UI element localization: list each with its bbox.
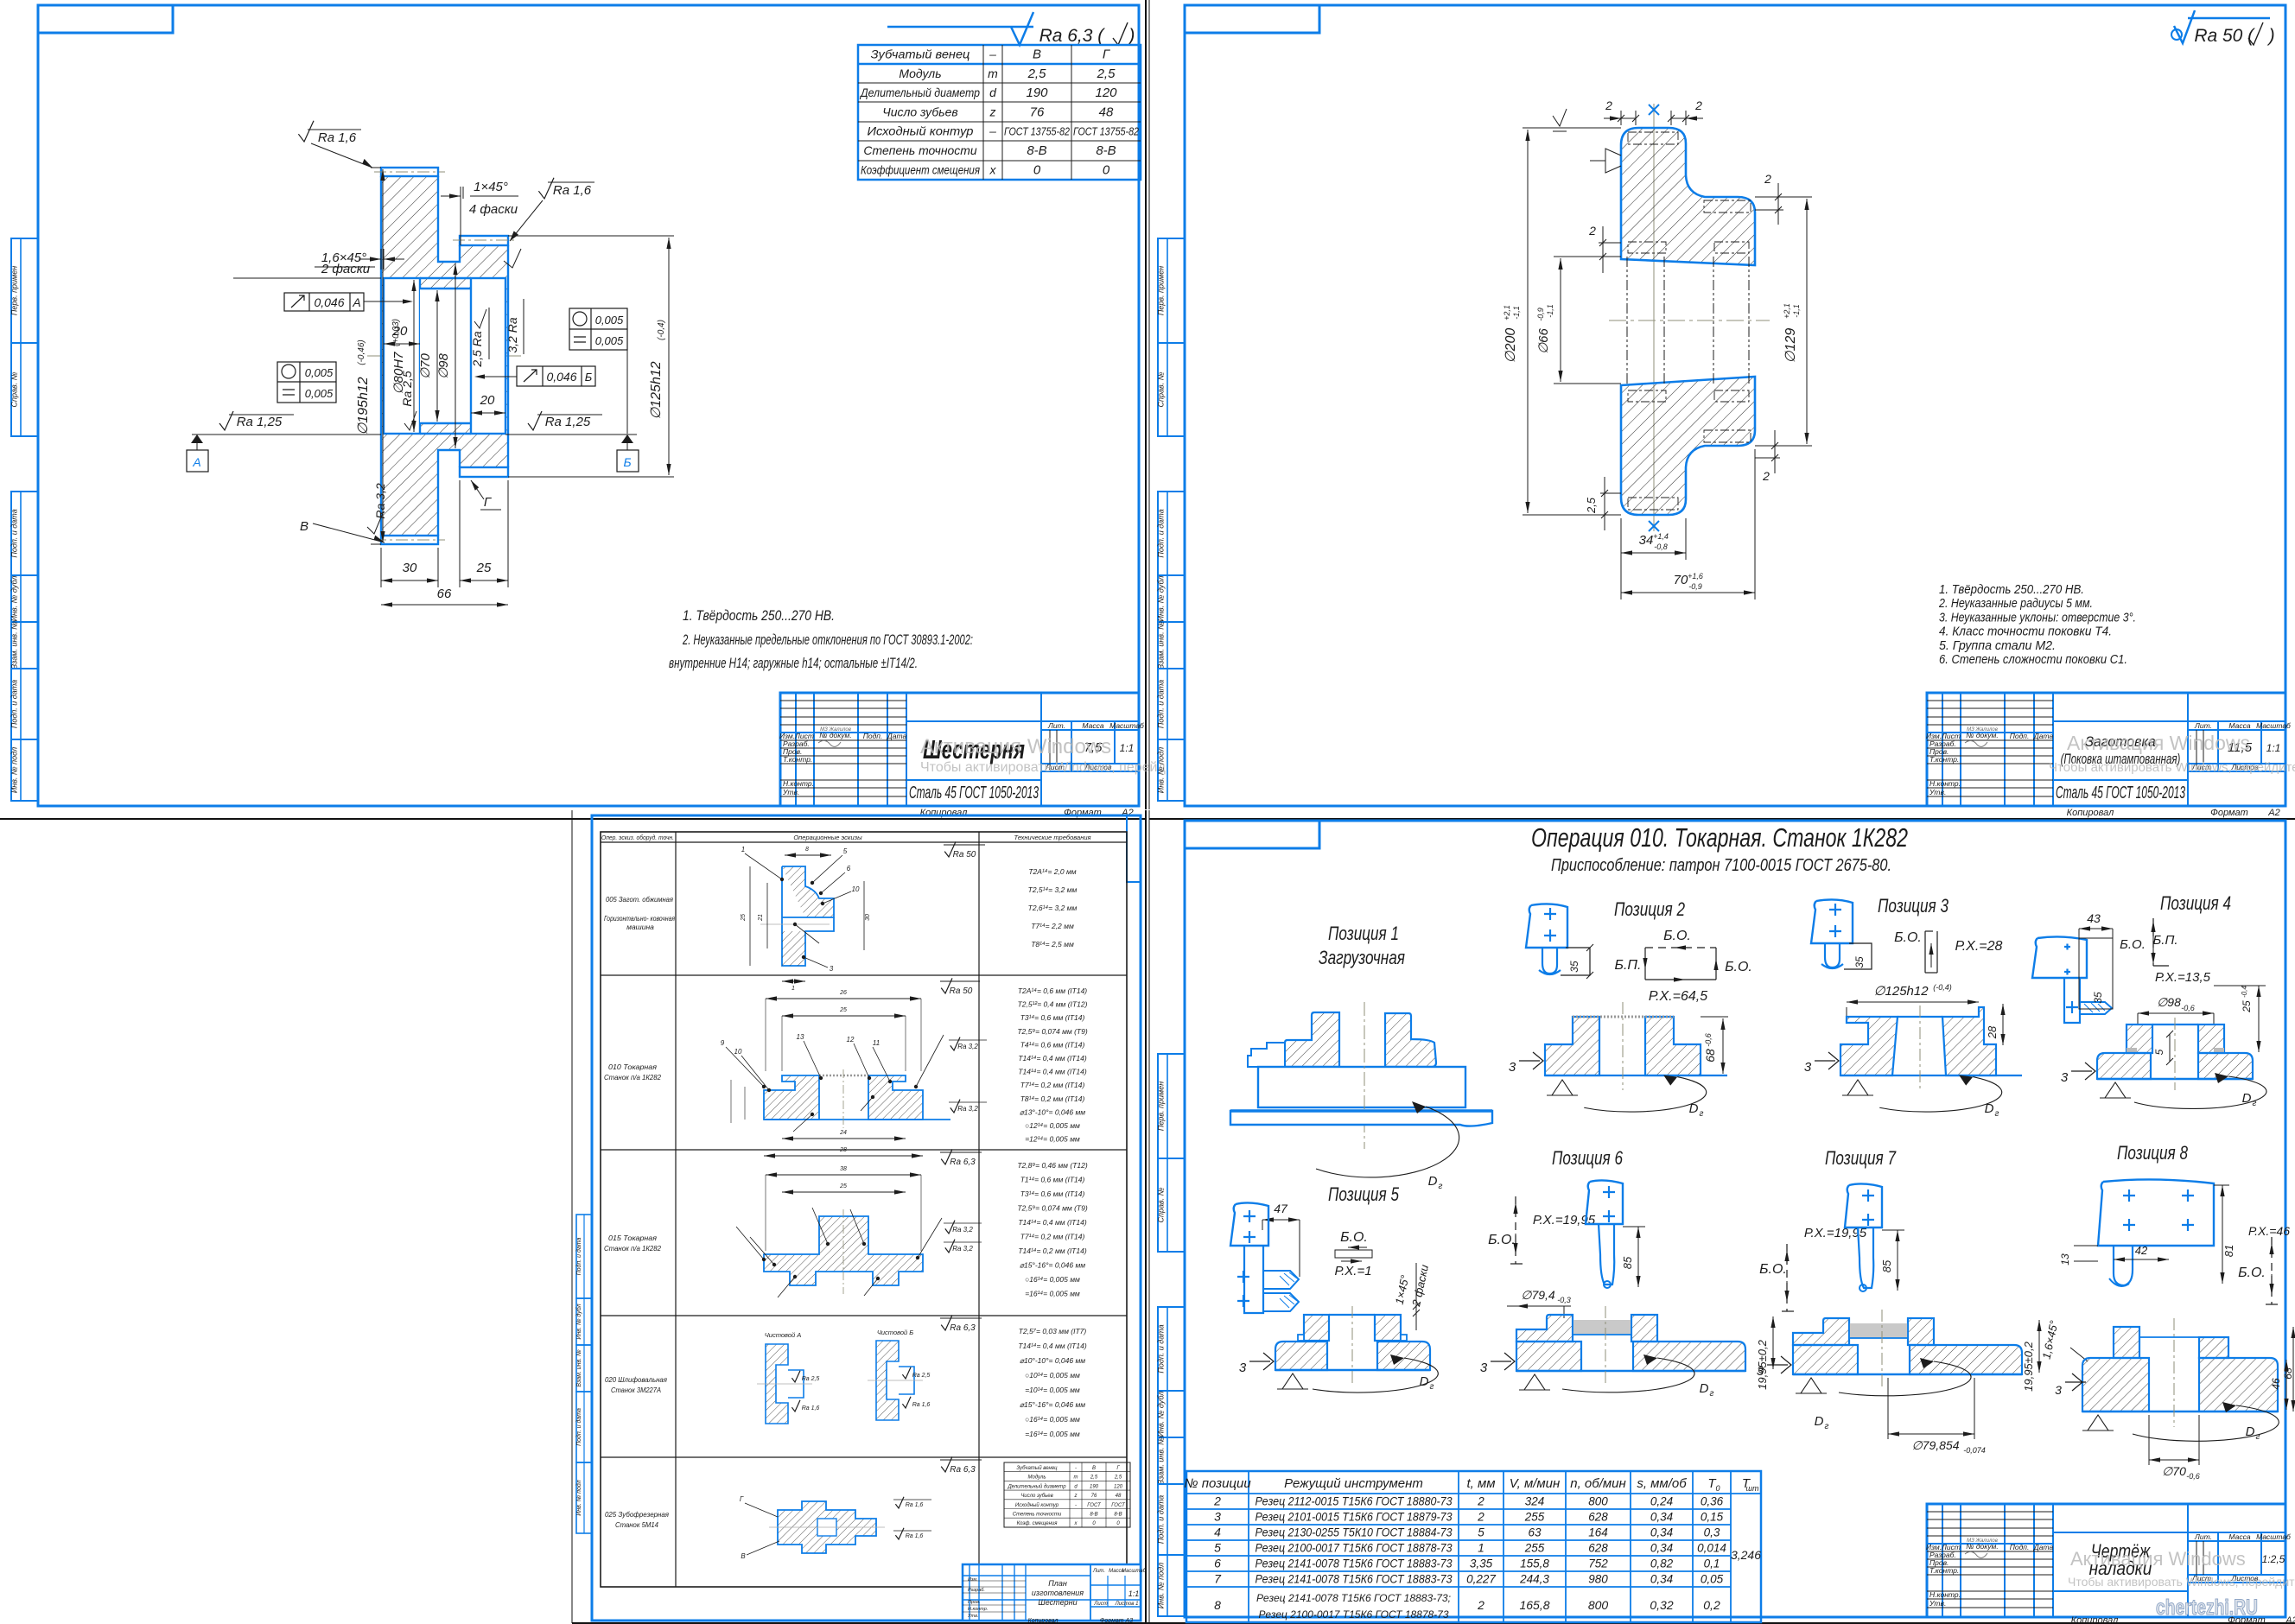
svg-text:Ra 50 ( ): Ra 50 ( ): [2194, 26, 2274, 46]
svg-text:№ позиции: № позиции: [1184, 1476, 1251, 1491]
svg-text:3: 3: [830, 965, 834, 973]
svg-text:Т2,8⁹= 0,46 мм (Т12): Т2,8⁹= 0,46 мм (Т12): [1017, 1161, 1088, 1170]
svg-text:190: 190: [1090, 1484, 1099, 1489]
svg-text:г: г: [2253, 1099, 2257, 1108]
svg-text:13: 13: [797, 1033, 804, 1041]
svg-text:∅66: ∅66: [1536, 327, 1551, 353]
svg-text:г: г: [1439, 1182, 1443, 1191]
svg-text:○16¹⁴= 0,005 мм: ○16¹⁴= 0,005 мм: [1025, 1415, 1080, 1424]
svg-text:2,5: 2,5: [1090, 1475, 1098, 1481]
svg-text:Т3¹⁴= 0,6 мм (IT14): Т3¹⁴= 0,6 мм (IT14): [1020, 1013, 1085, 1022]
svg-text:∅79,4: ∅79,4: [1521, 1288, 1555, 1302]
svg-text:Б.П.: Б.П.: [2153, 933, 2178, 948]
svg-text:190: 190: [1026, 86, 1048, 100]
svg-text:Лист: Лист: [1093, 1602, 1107, 1607]
svg-text:-0,9: -0,9: [1688, 582, 1702, 591]
svg-text:г: г: [2256, 1432, 2260, 1442]
svg-text:Исходный контур: Исходный контур: [1015, 1502, 1059, 1508]
svg-text:-: -: [1075, 1466, 1077, 1471]
svg-text:Ra 3,2: Ra 3,2: [957, 1105, 978, 1113]
svg-text:Делительный диаметр: Делительный диаметр: [859, 86, 980, 99]
svg-text:-0,6: -0,6: [2186, 1472, 2200, 1481]
svg-text:0,34: 0,34: [1650, 1511, 1673, 1524]
svg-text:5: 5: [1214, 1541, 1221, 1555]
svg-text:Б.О.: Б.О.: [1663, 929, 1691, 943]
svg-text:3. Неуказанные уклоны: отве: 3. Неуказанные уклоны: отверстие 3°.: [1939, 610, 2136, 625]
svg-text:+2,1: +2,1: [1503, 305, 1511, 320]
svg-text:-0,074: -0,074: [1963, 1446, 1986, 1455]
svg-text:1. Твёрдость 250...270 НВ.: 1. Твёрдость 250...270 НВ.: [1939, 582, 2084, 597]
svg-text:(-0,4): (-0,4): [657, 320, 666, 340]
svg-text:3: 3: [1509, 1060, 1516, 1075]
svg-text:V, м/мин: V, м/мин: [1510, 1476, 1561, 1491]
svg-text:2. Неуказанные радиусы 5 м: 2. Неуказанные радиусы 5 мм.: [1938, 596, 2093, 611]
svg-text:шт: шт: [1746, 1484, 1759, 1493]
svg-text:Р.Х.=64,5: Р.Х.=64,5: [1649, 989, 1707, 1004]
svg-text:-0,9: -0,9: [1536, 308, 1545, 321]
svg-text:Б.О.: Б.О.: [1488, 1233, 1516, 1247]
svg-text:3: 3: [2055, 1383, 2062, 1397]
svg-text:63: 63: [1528, 1526, 1542, 1539]
svg-text:Ra 1,25: Ra 1,25: [237, 415, 283, 429]
svg-text:120: 120: [1095, 86, 1117, 100]
svg-text:Модуль: Модуль: [899, 67, 941, 80]
svg-text:5: 5: [843, 847, 848, 855]
svg-text:5: 5: [2153, 1049, 2165, 1055]
svg-text:3: 3: [2061, 1070, 2069, 1085]
svg-text:-0,6: -0,6: [1704, 1033, 1713, 1047]
svg-text:Инв. № подл: Инв. № подл: [1157, 1563, 1166, 1608]
svg-text:(-0,4): (-0,4): [1933, 983, 1952, 992]
svg-text:Т8¹⁴= 2,5 мм: Т8¹⁴= 2,5 мм: [1031, 940, 1074, 948]
svg-text:∅98: ∅98: [2157, 995, 2181, 1009]
svg-text:В: В: [300, 519, 308, 534]
svg-text:6: 6: [1214, 1557, 1221, 1570]
svg-text:Ra 2,5: Ra 2,5: [400, 371, 414, 406]
svg-text:Дата: Дата: [2033, 732, 2054, 740]
svg-text:Станок п/а 1К282: Станок п/а 1К282: [604, 1073, 661, 1082]
svg-text:Подп. и дата: Подп. и дата: [1157, 1324, 1166, 1373]
svg-text:76: 76: [1030, 105, 1045, 119]
svg-text:-0,8: -0,8: [1654, 542, 1668, 551]
svg-text:изготовления: изготовления: [1032, 1589, 1084, 1597]
svg-text:∅70: ∅70: [418, 352, 433, 378]
svg-text:Т3¹⁴= 0,6 мм (IT14): Т3¹⁴= 0,6 мм (IT14): [1020, 1189, 1085, 1198]
svg-text:z: z: [989, 105, 996, 118]
svg-text:Разраб.: Разраб.: [968, 1588, 985, 1593]
svg-text:010 Токарная: 010 Токарная: [608, 1063, 657, 1071]
svg-text:3: 3: [1214, 1510, 1221, 1524]
svg-text:Взам. инв. №: Взам. инв. №: [1157, 621, 1166, 669]
svg-text:Резец 2112-0015 Т15К6 ГОСТ 188: Резец 2112-0015 Т15К6 ГОСТ 18880-73: [1256, 1495, 1453, 1508]
svg-text:Справ. №: Справ. №: [1157, 1187, 1166, 1222]
svg-text:Число зубьев: Число зубьев: [1020, 1494, 1053, 1499]
svg-text:Т2,5⁷= 0,03 мм (IT7): Т2,5⁷= 0,03 мм (IT7): [1019, 1327, 1087, 1335]
svg-text:Формат А3: Формат А3: [1100, 1618, 1133, 1624]
svg-text:Перв. примен: Перв. примен: [1157, 266, 1166, 315]
svg-text:Утв.: Утв.: [967, 1614, 979, 1619]
svg-text:–: –: [989, 48, 996, 61]
svg-text:Формат: Формат: [2210, 808, 2248, 818]
svg-text:Утв.: Утв.: [1929, 1599, 1946, 1608]
svg-text:3: 3: [1757, 1364, 1764, 1379]
svg-text:-: -: [1075, 1503, 1077, 1508]
svg-text:В: В: [1033, 48, 1041, 62]
svg-text:Ra 3,2: Ra 3,2: [957, 1043, 978, 1050]
svg-text:68: 68: [2282, 1367, 2294, 1380]
svg-text:Масштаб: Масштаб: [2256, 721, 2292, 730]
svg-text:Масштаб: Масштаб: [1109, 721, 1145, 730]
svg-text:0,046: 0,046: [314, 295, 344, 309]
svg-text:D: D: [1428, 1174, 1438, 1189]
svg-text:-1,1: -1,1: [1792, 304, 1801, 318]
svg-text:Модуль: Модуль: [1027, 1475, 1046, 1481]
svg-text:Позиция 8: Позиция 8: [2117, 1142, 2189, 1164]
svg-text:А2: А2: [2267, 808, 2279, 818]
svg-text:Изм.: Изм.: [968, 1577, 978, 1583]
svg-text:План: План: [1048, 1579, 1067, 1588]
svg-text:8-В: 8-В: [1096, 143, 1116, 158]
svg-text:2: 2: [1477, 1598, 1484, 1612]
svg-text:85: 85: [1880, 1259, 1893, 1272]
svg-text:⌀13°-10°= 0,046 мм: ⌀13°-10°= 0,046 мм: [1020, 1107, 1085, 1116]
svg-text:Позиция 7: Позиция 7: [1825, 1147, 1897, 1169]
svg-text:Чистовой А: Чистовой А: [765, 1331, 801, 1339]
svg-text:8-В: 8-В: [1027, 143, 1046, 158]
svg-text:Чтобы активировать Windows, пе: Чтобы активировать Windows, перейдите: [2068, 1575, 2295, 1589]
svg-text:Инв. № дубл: Инв. № дубл: [10, 576, 19, 622]
svg-text:МЗ Жалилов: МЗ Жалилов: [1967, 727, 1998, 733]
svg-text:164: 164: [1588, 1526, 1608, 1539]
svg-text:D: D: [1700, 1381, 1709, 1396]
svg-text:47: 47: [1274, 1202, 1288, 1215]
svg-text:Ra 50: Ra 50: [953, 850, 976, 860]
svg-text:ГОСТ: ГОСТ: [1111, 1503, 1126, 1508]
svg-text:38: 38: [840, 1166, 847, 1172]
svg-text:015 Токарная: 015 Токарная: [608, 1234, 657, 1242]
svg-text:Лит.: Лит.: [1092, 1569, 1105, 1574]
svg-text:+2,1: +2,1: [1783, 303, 1791, 319]
svg-text:Дата: Дата: [2033, 1543, 2054, 1551]
svg-text:28: 28: [839, 1147, 847, 1153]
svg-text:Резец 2141-0078 Т15К6 ГОСТ 188: Резец 2141-0078 Т15К6 ГОСТ 18883-73: [1256, 1573, 1453, 1586]
svg-text:Режущий инструмент: Режущий инструмент: [1284, 1476, 1423, 1491]
svg-text:Т7¹⁴= 2,2 мм: Т7¹⁴= 2,2 мм: [1031, 922, 1074, 930]
svg-text:Ra 1,6: Ra 1,6: [906, 1533, 924, 1539]
svg-text:Операция 010. Токарная. Стан: Операция 010. Токарная. Станок 1К282: [1531, 822, 1908, 853]
svg-text:∅200: ∅200: [1504, 328, 1518, 364]
svg-text:005 Загот. обжимная: 005 Загот. обжимная: [606, 895, 673, 904]
svg-text:МЗ Жалилов: МЗ Жалилов: [820, 727, 851, 733]
svg-text:Ra 3,2: Ra 3,2: [952, 1226, 973, 1234]
svg-text:10: 10: [852, 885, 860, 893]
svg-text:D: D: [2242, 1091, 2252, 1106]
svg-text:2: 2: [1477, 1495, 1484, 1508]
svg-text:Н.контр.: Н.контр.: [1929, 779, 1961, 788]
svg-text:8-В: 8-В: [1090, 1513, 1097, 1518]
svg-text:Подп. и дата: Подп. и дата: [575, 1237, 582, 1275]
svg-text:Масштаб: Масштаб: [2256, 1532, 2292, 1541]
svg-text:Позиция 1: Позиция 1: [1328, 923, 1399, 944]
svg-text:Чтобы активировать Windows, пе: Чтобы активировать Windows, перейдите: [2049, 760, 2295, 775]
svg-text:+1,6: +1,6: [1688, 572, 1703, 580]
svg-text:Сталь 45 ГОСТ 1050-2013: Сталь 45 ГОСТ 1050-2013: [2056, 783, 2185, 802]
svg-text:Лит.: Лит.: [2194, 721, 2212, 730]
svg-text:5. Группа стали М2.: 5. Группа стали М2.: [1939, 638, 2056, 653]
svg-text:19,95±0,2: 19,95±0,2: [2022, 1341, 2035, 1392]
svg-text:d: d: [989, 86, 997, 99]
svg-text:=10¹⁴= 0,005 мм: =10¹⁴= 0,005 мм: [1025, 1386, 1080, 1394]
svg-text:25: 25: [839, 1007, 847, 1013]
svg-text:Т2А¹⁴= 2,0 мм: Т2А¹⁴= 2,0 мм: [1028, 867, 1076, 876]
svg-text:⌀15°-16°= 0,046 мм: ⌀15°-16°= 0,046 мм: [1020, 1261, 1085, 1270]
svg-text:А: А: [192, 455, 200, 469]
svg-text:Коэффициент смещения: Коэффициент смещения: [861, 162, 980, 176]
svg-text:Резец 2100-0017 Т15К6 ГОСТ 188: Резец 2100-0017 Т15К6 ГОСТ 18878-73: [1256, 1542, 1453, 1555]
svg-text:Масштаб: Масштаб: [1122, 1569, 1147, 1574]
svg-text:Ra 1,6: Ra 1,6: [912, 1402, 931, 1408]
svg-text:Ra 6,3: Ra 6,3: [950, 1323, 976, 1333]
svg-text:Станок 3М227А: Станок 3М227А: [611, 1386, 661, 1394]
svg-text:6: 6: [847, 865, 851, 872]
svg-text:Приспособление: патрон 7100-: Приспособление: патрон 7100-0015 ГОСТ 26…: [1551, 856, 1891, 875]
svg-text:Резец 2141-0078 Т15К6 ГОСТ 188: Резец 2141-0078 Т15К6 ГОСТ 18883-73: [1256, 1557, 1453, 1570]
svg-text:Б: Б: [623, 455, 631, 469]
svg-text:Перв. примен: Перв. примен: [1157, 1082, 1166, 1131]
svg-text:Степень точности: Степень точности: [1013, 1513, 1062, 1518]
svg-text:3,2 Ra: 3,2 Ra: [505, 317, 519, 352]
svg-text:76: 76: [1091, 1494, 1097, 1499]
svg-text:∅195h12: ∅195h12: [356, 377, 371, 435]
svg-text:Р.Х.=13,5: Р.Х.=13,5: [2155, 970, 2211, 985]
svg-text:Резец 2141-0078 Т15К6 ГОСТ 188: Резец 2141-0078 Т15К6 ГОСТ 18883-73;: [1256, 1592, 1451, 1604]
svg-text:-1,1: -1,1: [1546, 304, 1554, 318]
svg-text:D: D: [1985, 1101, 1994, 1116]
svg-text:t, мм: t, мм: [1466, 1476, 1495, 1491]
svg-text:г: г: [1430, 1382, 1434, 1392]
svg-text:Исходный контур: Исходный контур: [868, 124, 974, 138]
svg-text:В: В: [1092, 1466, 1096, 1471]
svg-text:25: 25: [476, 561, 492, 575]
svg-text:21: 21: [758, 914, 764, 922]
svg-text:1: 1: [741, 846, 745, 853]
svg-text:2: 2: [1477, 1511, 1484, 1524]
svg-text:Позиция 2: Позиция 2: [1614, 898, 1685, 920]
svg-text:120: 120: [1114, 1484, 1123, 1489]
svg-text:Ra 2,5: Ra 2,5: [912, 1373, 931, 1379]
svg-text:2: 2: [1213, 1494, 1221, 1508]
svg-text:Подп.: Подп.: [2010, 1543, 2030, 1551]
svg-text:0,24: 0,24: [1650, 1495, 1673, 1508]
svg-text:Р.Х.=28: Р.Х.=28: [1955, 939, 2003, 954]
svg-text:Пров.: Пров.: [968, 1600, 981, 1605]
svg-text:Т14¹⁴= 0,2 мм (IT14): Т14¹⁴= 0,2 мм (IT14): [1018, 1247, 1087, 1255]
svg-text:Зубчатый венец: Зубчатый венец: [871, 48, 970, 61]
svg-text:800: 800: [1588, 1598, 1609, 1612]
svg-text:Б.П.: Б.П.: [1615, 958, 1642, 973]
svg-text:Подп. и дата: Подп. и дата: [10, 680, 19, 728]
svg-text:0,014: 0,014: [1697, 1542, 1726, 1555]
svg-text:26: 26: [839, 990, 847, 996]
svg-text:Масса: Масса: [1082, 721, 1103, 730]
svg-text:Листов 1: Листов 1: [1115, 1602, 1139, 1607]
svg-text:Позиция 4: Позиция 4: [2160, 892, 2231, 914]
svg-text:Н.контр.: Н.контр.: [1929, 1590, 1961, 1599]
svg-text:8: 8: [1214, 1598, 1221, 1612]
svg-text:○12¹⁴= 0,005 мм: ○12¹⁴= 0,005 мм: [1025, 1121, 1080, 1130]
svg-text:43: 43: [2087, 911, 2101, 925]
svg-text:2,5: 2,5: [1097, 67, 1116, 81]
svg-text:Опер. эскиз. оборуд. точн.: Опер. эскиз. оборуд. точн.: [601, 834, 674, 841]
svg-text:=12¹⁴= 0,005 мм: =12¹⁴= 0,005 мм: [1025, 1135, 1080, 1144]
svg-text:0,005: 0,005: [305, 387, 334, 400]
svg-text:Активация Windows: Активация Windows: [920, 735, 1111, 758]
svg-text:+1,4: +1,4: [1653, 532, 1669, 541]
svg-text:0,005: 0,005: [595, 314, 624, 327]
svg-text:∅98: ∅98: [436, 352, 451, 378]
svg-text:752: 752: [1588, 1557, 1608, 1570]
svg-text:Позиция 6: Позиция 6: [1552, 1147, 1624, 1169]
svg-text:Подп. и дата: Подп. и дата: [1157, 680, 1166, 728]
svg-text:2,5: 2,5: [1027, 67, 1047, 81]
svg-text:3,246: 3,246: [1731, 1548, 1761, 1562]
svg-text:ГОСТ: ГОСТ: [1087, 1503, 1102, 1508]
svg-text:20: 20: [480, 393, 495, 408]
svg-text:Инв. № дубл: Инв. № дубл: [575, 1304, 582, 1339]
svg-text:n, об/мин: n, об/мин: [1570, 1476, 1626, 1491]
svg-text:Дата: Дата: [887, 732, 907, 740]
svg-text:Б.О.: Б.О.: [2238, 1266, 2266, 1280]
svg-text:Взам. инв. №: Взам. инв. №: [576, 1349, 582, 1387]
svg-text:2: 2: [1605, 98, 1612, 112]
svg-text:155,8: 155,8: [1520, 1557, 1549, 1570]
svg-text:г: г: [1700, 1109, 1704, 1119]
svg-text:0: 0: [1033, 162, 1041, 177]
svg-text:0,3: 0,3: [1704, 1526, 1720, 1539]
svg-text:10: 10: [734, 1048, 742, 1056]
svg-text:Подп.: Подп.: [2010, 732, 2030, 740]
svg-text:Т2,5⁹= 0,074 мм (Т9): Т2,5⁹= 0,074 мм (Т9): [1017, 1204, 1088, 1213]
svg-text:Ra 1,6: Ra 1,6: [802, 1405, 820, 1411]
svg-text:0,1: 0,1: [1704, 1557, 1720, 1570]
svg-text:Ra 1,6: Ra 1,6: [906, 1502, 924, 1508]
svg-text:Масса: Масса: [2228, 1532, 2250, 1541]
svg-text:1:1: 1:1: [2266, 742, 2281, 754]
svg-text:Инв. № дубл: Инв. № дубл: [1157, 1392, 1166, 1437]
svg-text:628: 628: [1588, 1542, 1608, 1555]
svg-text:Т14¹⁴= 0,4 мм (IT14): Т14¹⁴= 0,4 мм (IT14): [1018, 1342, 1087, 1350]
svg-text:∅79,854: ∅79,854: [1911, 1438, 1959, 1452]
svg-text:Ra 50: Ra 50: [950, 986, 973, 996]
svg-text:025 Зубофрезерная: 025 Зубофрезерная: [605, 1510, 669, 1519]
svg-text:Масса: Масса: [2228, 721, 2250, 730]
svg-text:машина: машина: [626, 923, 654, 931]
svg-text:Справ. №: Справ. №: [10, 371, 19, 407]
svg-text:1: 1: [791, 986, 795, 992]
svg-text:Т2,5¹⁴= 3,2 мм: Т2,5¹⁴= 3,2 мм: [1028, 885, 1078, 894]
svg-text:68: 68: [1703, 1049, 1717, 1063]
svg-text:8: 8: [805, 847, 809, 853]
svg-text:1. Твёрдость 250...270 НВ.: 1. Твёрдость 250...270 НВ.: [683, 607, 835, 624]
svg-text:Т2,6¹⁴= 3,2 мм: Т2,6¹⁴= 3,2 мм: [1028, 904, 1078, 912]
svg-text:34: 34: [1639, 533, 1654, 548]
svg-text:11: 11: [873, 1039, 880, 1047]
svg-text:Т7¹⁴= 0,2 мм (IT14): Т7¹⁴= 0,2 мм (IT14): [1020, 1233, 1085, 1241]
svg-text:(-0,46): (-0,46): [357, 339, 366, 365]
svg-text:0,005: 0,005: [305, 366, 334, 379]
svg-text:Операционные эскизы: Операционные эскизы: [793, 834, 862, 841]
svg-text:Инв. № подл: Инв. № подл: [1157, 747, 1166, 793]
svg-text:○10¹⁴= 0,005 мм: ○10¹⁴= 0,005 мм: [1025, 1371, 1080, 1380]
svg-text:42: 42: [2135, 1244, 2148, 1257]
svg-text:8-В: 8-В: [1114, 1513, 1122, 1518]
svg-text:Подп. и дата: Подп. и дата: [575, 1408, 582, 1446]
svg-text:4. Класс точности поковки Т: 4. Класс точности поковки Т4.: [1939, 625, 2112, 639]
svg-text:-0,6: -0,6: [2181, 1004, 2195, 1012]
svg-text:Б.О.: Б.О.: [1894, 930, 1922, 945]
svg-text:Копировал: Копировал: [2071, 1615, 2119, 1624]
svg-text:255: 255: [1524, 1542, 1545, 1555]
svg-text:–: –: [989, 124, 996, 138]
svg-text:0,34: 0,34: [1650, 1526, 1673, 1539]
svg-text:35: 35: [1853, 956, 1866, 968]
svg-text:Т.контр.: Т.контр.: [1929, 1566, 1959, 1575]
svg-text:0,005: 0,005: [595, 334, 624, 347]
svg-text:Позиция 5: Позиция 5: [1328, 1183, 1400, 1205]
svg-text:Т.контр.: Т.контр.: [1929, 755, 1959, 764]
svg-text:Ra 6,3: Ra 6,3: [950, 1465, 976, 1475]
svg-text:Активация Windows: Активация Windows: [2070, 1548, 2246, 1570]
svg-text:980: 980: [1588, 1573, 1608, 1586]
svg-text:Подп. и дата: Подп. и дата: [10, 509, 19, 557]
svg-text:2: 2: [1588, 224, 1596, 238]
svg-text:⌀10°-10°= 0,046 мм: ⌀10°-10°= 0,046 мм: [1020, 1356, 1085, 1365]
svg-text:Т4¹⁴= 0,6 мм (IT14): Т4¹⁴= 0,6 мм (IT14): [1020, 1040, 1085, 1049]
svg-text:Делительный диаметр: Делительный диаметр: [1007, 1483, 1066, 1489]
svg-text:4: 4: [1214, 1526, 1221, 1539]
svg-text:0: 0: [1715, 1484, 1720, 1493]
svg-text:Б.О.: Б.О.: [1340, 1230, 1368, 1245]
svg-text:30: 30: [403, 561, 417, 575]
svg-text:-0,4: -0,4: [2241, 986, 2248, 998]
svg-text:Н.контр.: Н.контр.: [968, 1607, 988, 1612]
svg-text:0,36: 0,36: [1701, 1495, 1724, 1508]
svg-text:0,2: 0,2: [1703, 1598, 1720, 1612]
svg-text:Ra 3,2: Ra 3,2: [373, 483, 387, 518]
svg-text:∅129: ∅129: [1783, 328, 1798, 364]
svg-text:1×45°: 1×45°: [474, 180, 508, 194]
svg-text:Взам. инв. №: Взам. инв. №: [1157, 1437, 1166, 1485]
svg-text:Резец 2130-0255 Т5К10 ГОСТ 188: Резец 2130-0255 Т5К10 ГОСТ 18884-73: [1256, 1526, 1453, 1539]
svg-text:Взам. инв. №: Взам. инв. №: [10, 621, 19, 669]
svg-text:Формат: Формат: [2228, 1615, 2266, 1624]
svg-text:Ra 6,3 ( ): Ra 6,3 ( ): [1039, 26, 1135, 46]
svg-text:А2: А2: [2285, 1615, 2295, 1624]
svg-text:Т.контр.: Т.контр.: [783, 755, 812, 764]
svg-text:70: 70: [1674, 573, 1688, 587]
svg-text:Ra 6,3: Ra 6,3: [950, 1158, 976, 1167]
svg-text:3: 3: [1239, 1361, 1247, 1375]
svg-text:Ra 1,6: Ra 1,6: [318, 130, 357, 145]
svg-text:ГОСТ 13755-82: ГОСТ 13755-82: [1073, 125, 1140, 138]
svg-text:-0,3: -0,3: [1557, 1296, 1571, 1304]
svg-text:25: 25: [2241, 1000, 2253, 1013]
svg-text:Т14¹⁴= 0,4 мм (IT14): Т14¹⁴= 0,4 мм (IT14): [1018, 1218, 1087, 1227]
svg-text:Ra 3,2: Ra 3,2: [952, 1245, 973, 1253]
svg-text:35: 35: [2092, 992, 2104, 1004]
svg-text:=16¹⁴= 0,005 мм: =16¹⁴= 0,005 мм: [1025, 1430, 1080, 1438]
svg-text:x: x: [989, 162, 997, 176]
